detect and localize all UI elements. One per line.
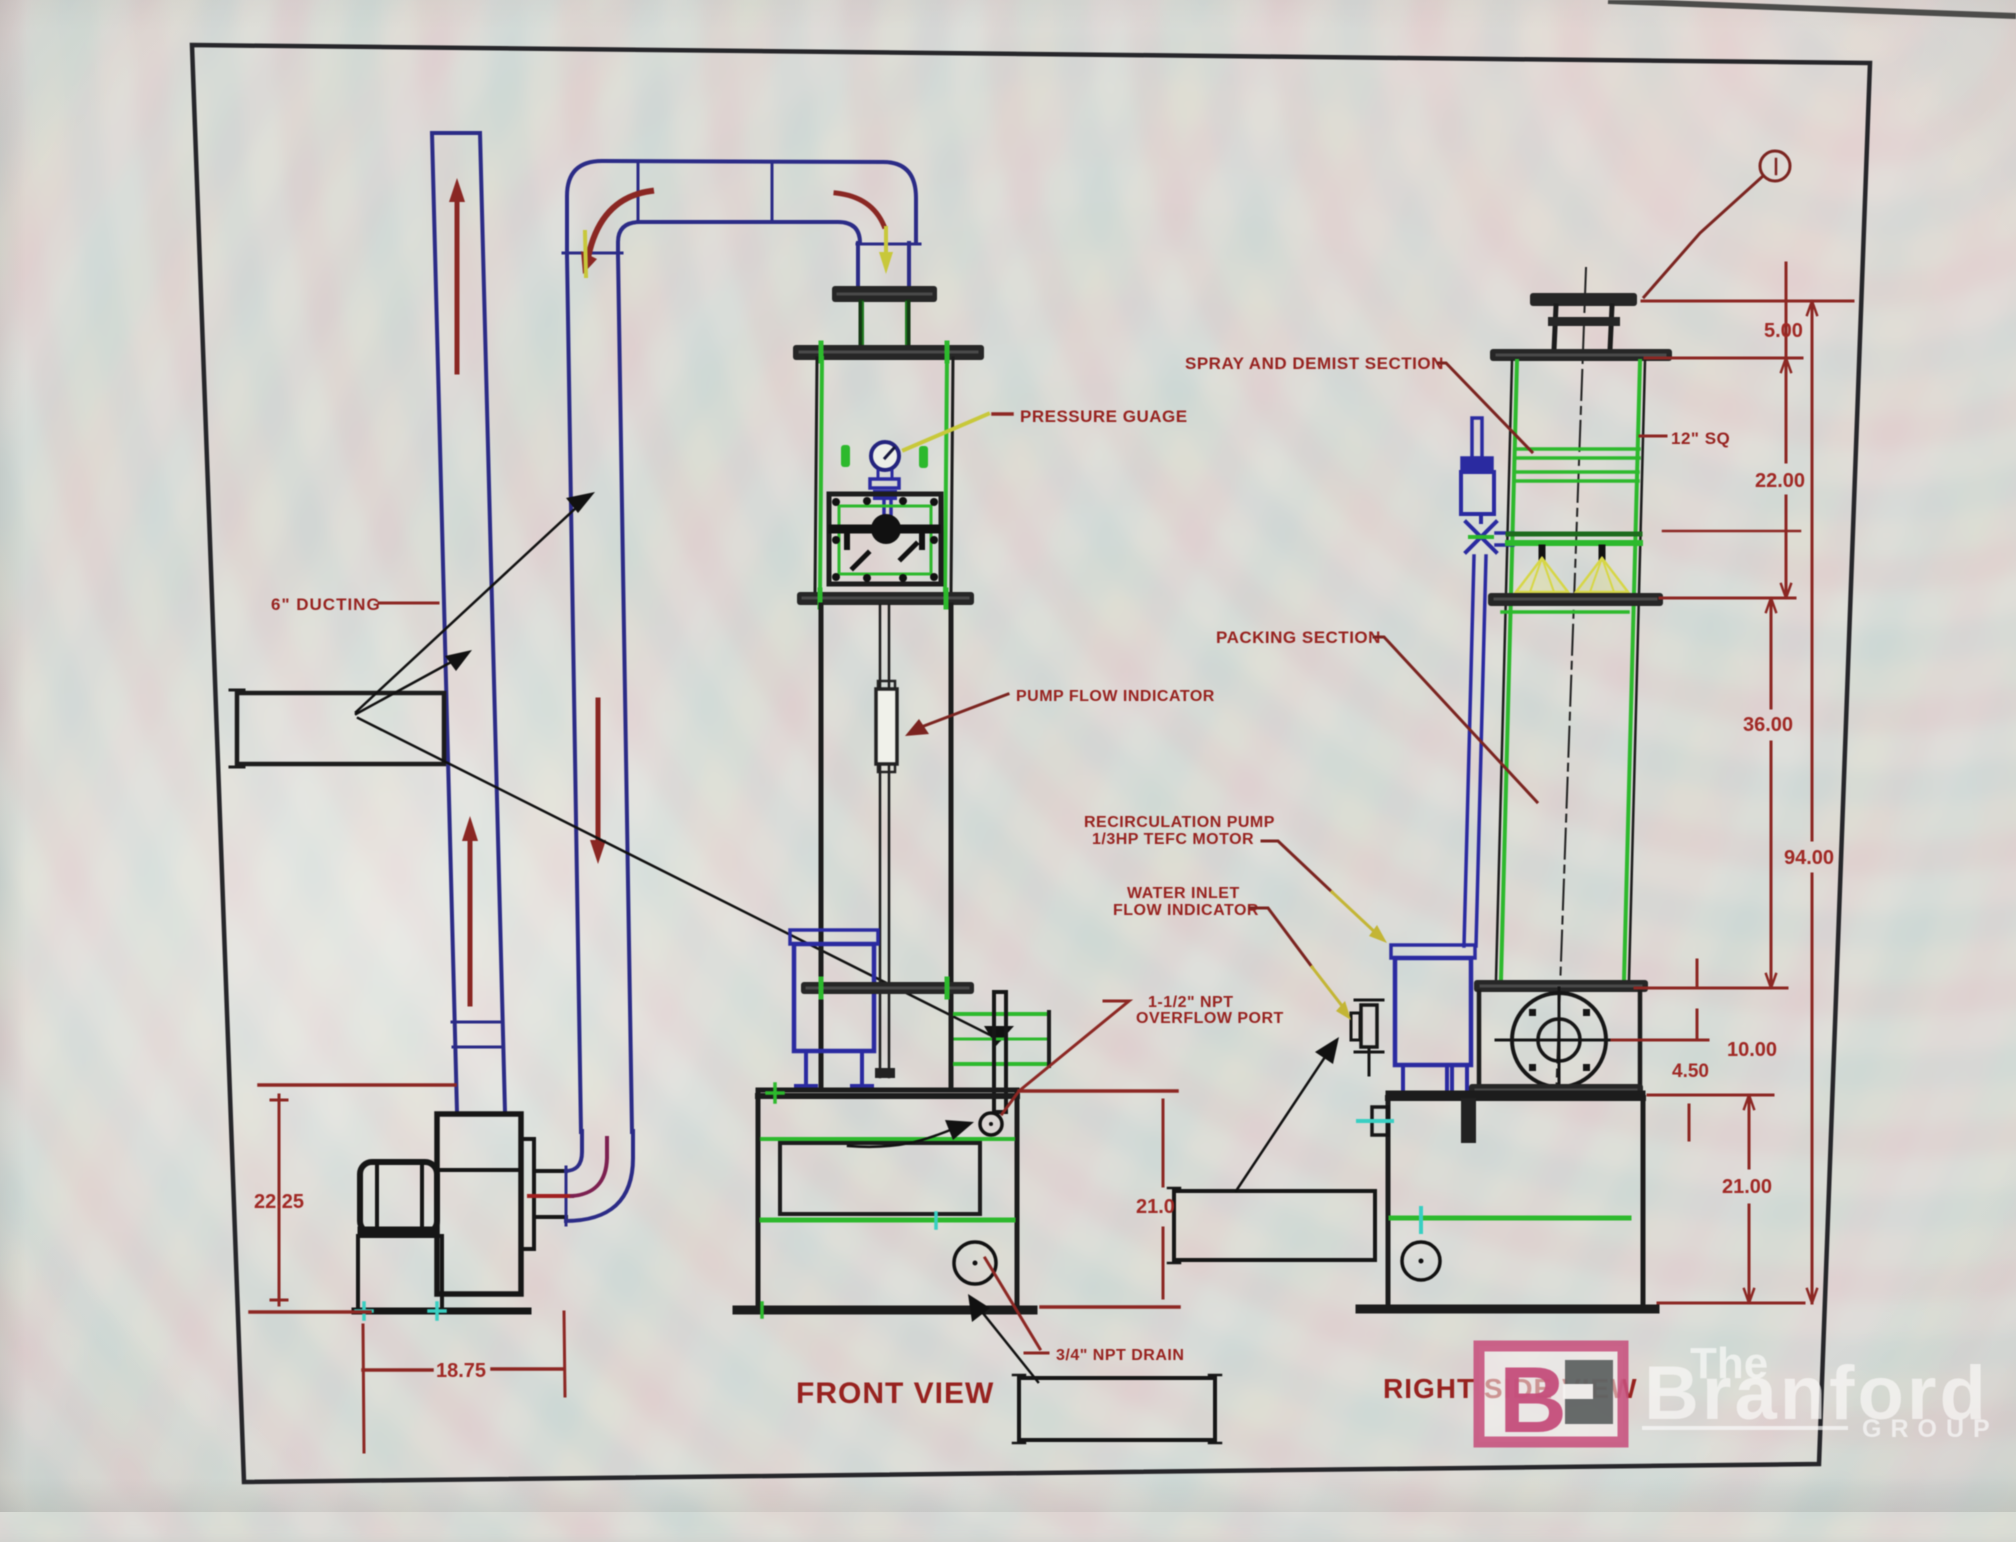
svg-text:OVERFLOW PORT: OVERFLOW PORT: [1136, 1010, 1284, 1027]
svg-text:4.50: 4.50: [1672, 1061, 1709, 1082]
svg-text:GROUP: GROUP: [1862, 1415, 1999, 1443]
svg-text:22.25: 22.25: [254, 1191, 304, 1213]
svg-text:21.0: 21.0: [1136, 1196, 1175, 1218]
svg-text:12" SQ: 12" SQ: [1671, 429, 1730, 448]
svg-text:FLOW INDICATOR: FLOW INDICATOR: [1113, 902, 1259, 919]
svg-text:RECIRCULATION PUMP: RECIRCULATION PUMP: [1084, 814, 1275, 831]
svg-text:36.00: 36.00: [1743, 714, 1793, 736]
svg-text:22.00: 22.00: [1755, 470, 1805, 492]
svg-text:1-1/2" NPT: 1-1/2" NPT: [1148, 994, 1234, 1011]
svg-text:PRESSURE GUAGE: PRESSURE GUAGE: [1020, 407, 1188, 426]
svg-text:94.00: 94.00: [1784, 847, 1834, 869]
svg-text:PUMP FLOW INDICATOR: PUMP FLOW INDICATOR: [1016, 688, 1215, 705]
svg-text:10.00: 10.00: [1727, 1039, 1777, 1061]
svg-text:FRONT VIEW: FRONT VIEW: [796, 1377, 994, 1410]
svg-text:WATER INLET: WATER INLET: [1127, 885, 1240, 902]
svg-text:6" DUCTING: 6" DUCTING: [271, 595, 381, 614]
svg-text:1/3HP TEFC MOTOR: 1/3HP TEFC MOTOR: [1092, 831, 1254, 848]
svg-text:21.00: 21.00: [1722, 1176, 1772, 1198]
svg-text:3/4" NPT DRAIN: 3/4" NPT DRAIN: [1056, 1347, 1184, 1364]
svg-text:B: B: [1499, 1347, 1567, 1452]
svg-text:SPRAY AND DEMIST SECTION: SPRAY AND DEMIST SECTION: [1185, 354, 1444, 373]
svg-text:18.75: 18.75: [436, 1360, 486, 1382]
svg-text:PACKING SECTION: PACKING SECTION: [1216, 628, 1381, 647]
svg-text:5.00: 5.00: [1764, 320, 1803, 342]
